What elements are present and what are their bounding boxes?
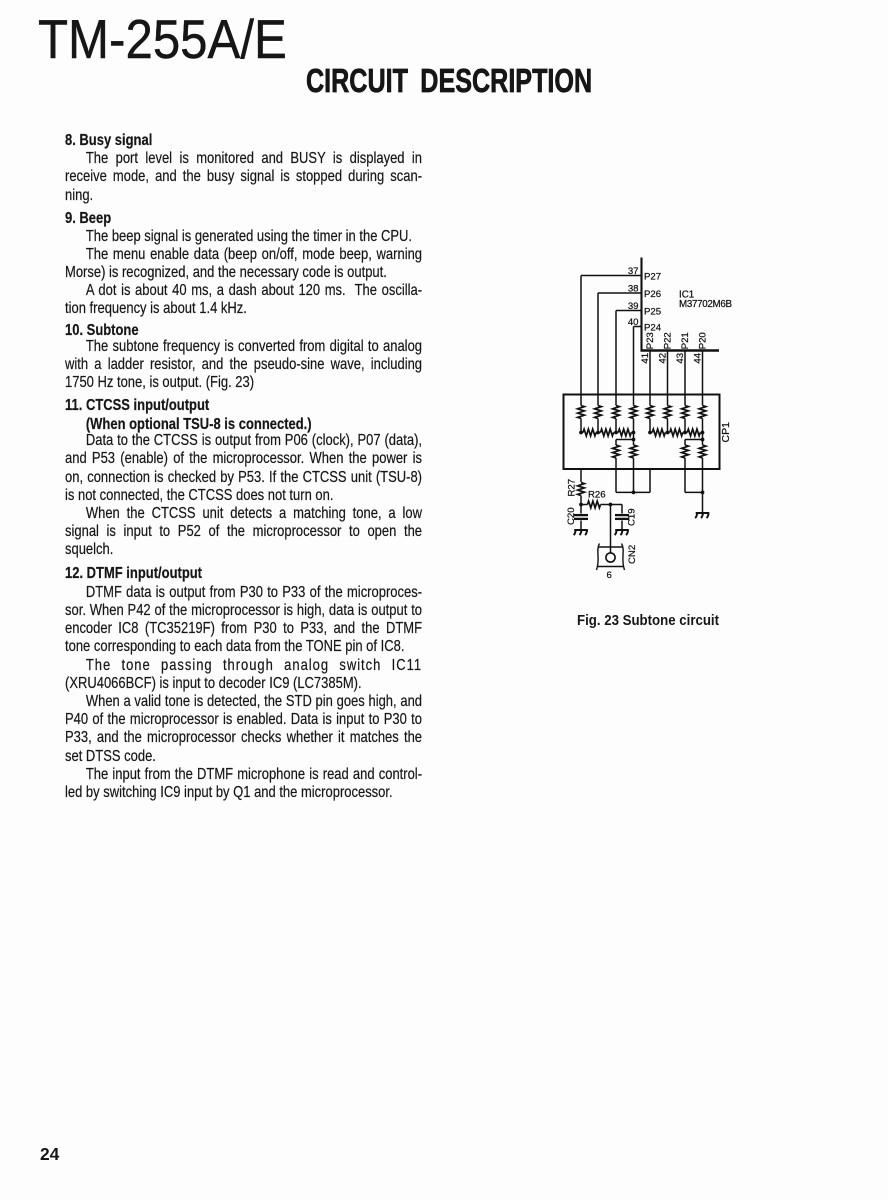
svg-text:R27: R27	[567, 479, 578, 497]
svg-text:43: 43	[675, 353, 686, 364]
svg-text:P26: P26	[644, 289, 661, 300]
svg-text:M37702M6B: M37702M6B	[679, 299, 732, 310]
svg-text:6: 6	[607, 570, 612, 581]
svg-text:P23: P23	[645, 332, 656, 349]
svg-text:38: 38	[628, 283, 639, 294]
svg-text:CN2: CN2	[627, 545, 638, 564]
svg-text:44: 44	[693, 352, 704, 363]
svg-text:CP1: CP1	[720, 422, 732, 443]
svg-text:P20: P20	[698, 332, 709, 349]
svg-text:41: 41	[640, 353, 651, 364]
svg-text:40: 40	[628, 317, 639, 328]
svg-text:42: 42	[658, 353, 669, 364]
svg-text:P24: P24	[644, 323, 662, 334]
svg-text:P25: P25	[644, 307, 661, 318]
svg-text:39: 39	[628, 301, 639, 312]
svg-text:P22: P22	[663, 332, 674, 349]
svg-text:R26: R26	[588, 490, 606, 501]
svg-text:P27: P27	[644, 272, 661, 283]
svg-text:C19: C19	[627, 508, 638, 526]
svg-text:37: 37	[628, 266, 639, 277]
svg-text:C20: C20	[566, 507, 577, 525]
svg-text:P21: P21	[680, 332, 691, 349]
